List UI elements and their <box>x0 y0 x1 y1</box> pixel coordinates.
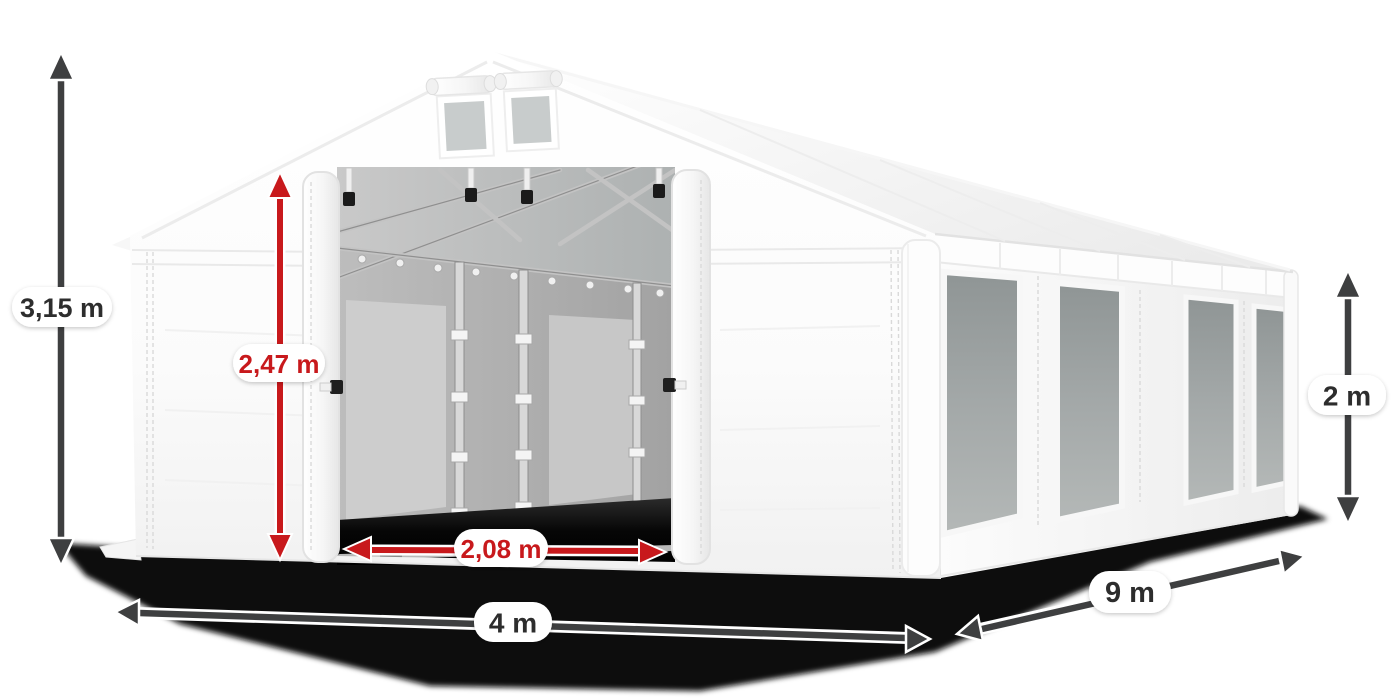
wall-bottom-flap <box>100 539 141 560</box>
dim-front-width-value: 4 m <box>489 608 537 639</box>
dim-side-wall-height: 2 m <box>1308 270 1386 524</box>
roof-overhang <box>112 236 132 251</box>
dim-entrance-height-value: 2,47 m <box>239 349 320 379</box>
dim-side-length-value: 9 m <box>1105 577 1155 609</box>
back-corner-pillar <box>1284 270 1298 516</box>
dim-entrance-width-value: 2,08 m <box>461 534 542 564</box>
side-window-3 <box>1186 297 1236 503</box>
tent-dimensions-diagram: 3,15 m 2,47 m 2,08 m 4 m 9 m <box>0 0 1400 700</box>
vent-glass <box>444 101 486 151</box>
vent-glass <box>511 96 551 144</box>
side-window-2 <box>1057 283 1122 520</box>
tent-interior <box>337 152 675 565</box>
interior-window-panel <box>549 315 637 505</box>
door-buckle <box>330 380 343 394</box>
door-buckle <box>663 378 676 392</box>
diagram-canvas: 3,15 m 2,47 m 2,08 m 4 m 9 m <box>0 0 1400 700</box>
dim-side-wall-height-value: 2 m <box>1323 381 1371 412</box>
dim-total-height-value: 3,15 m <box>20 293 104 323</box>
side-window-1 <box>944 272 1020 534</box>
dim-total-height: 3,15 m <box>12 52 112 566</box>
interior-window-panel <box>346 300 446 520</box>
